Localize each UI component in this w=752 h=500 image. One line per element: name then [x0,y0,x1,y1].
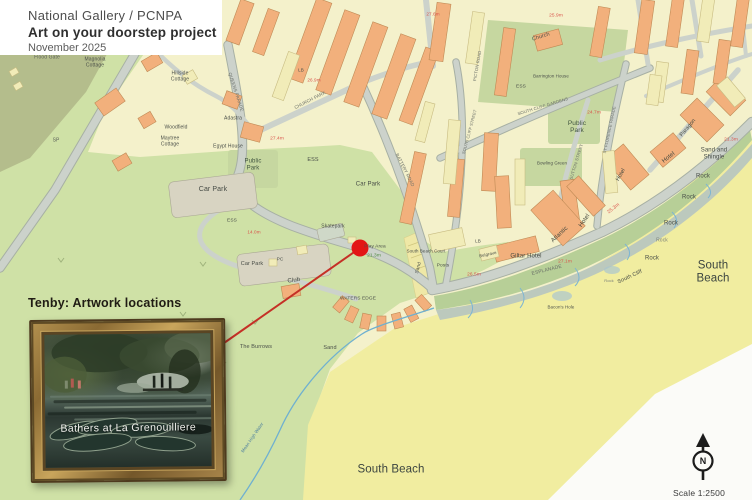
north-label: N [700,456,707,466]
painting-frame: Bathers at La Grenouilliere [29,318,227,483]
painting-detail [44,333,214,460]
header-project-title: Art on your doorstep project [28,25,222,40]
painting-canvas: Bathers at La Grenouilliere [41,330,214,471]
header-org: National Gallery / PCNPA [28,8,222,23]
header-card: National Gallery / PCNPA Art on your doo… [0,0,222,55]
artwork-location-marker [352,240,369,257]
header-date: November 2025 [28,42,222,54]
rock-pool [604,266,620,274]
screenshot-root: Flood GateSPMagnolia CottageHillside Cot… [0,0,752,500]
scale-label: Scale 1:2500 [673,488,725,498]
section-title: Tenby: Artwork locations [28,296,181,310]
rock-pool [552,291,572,301]
painting-caption: Bathers at La Grenouilliere [45,421,211,435]
painting-art: Bathers at La Grenouilliere [44,333,211,468]
